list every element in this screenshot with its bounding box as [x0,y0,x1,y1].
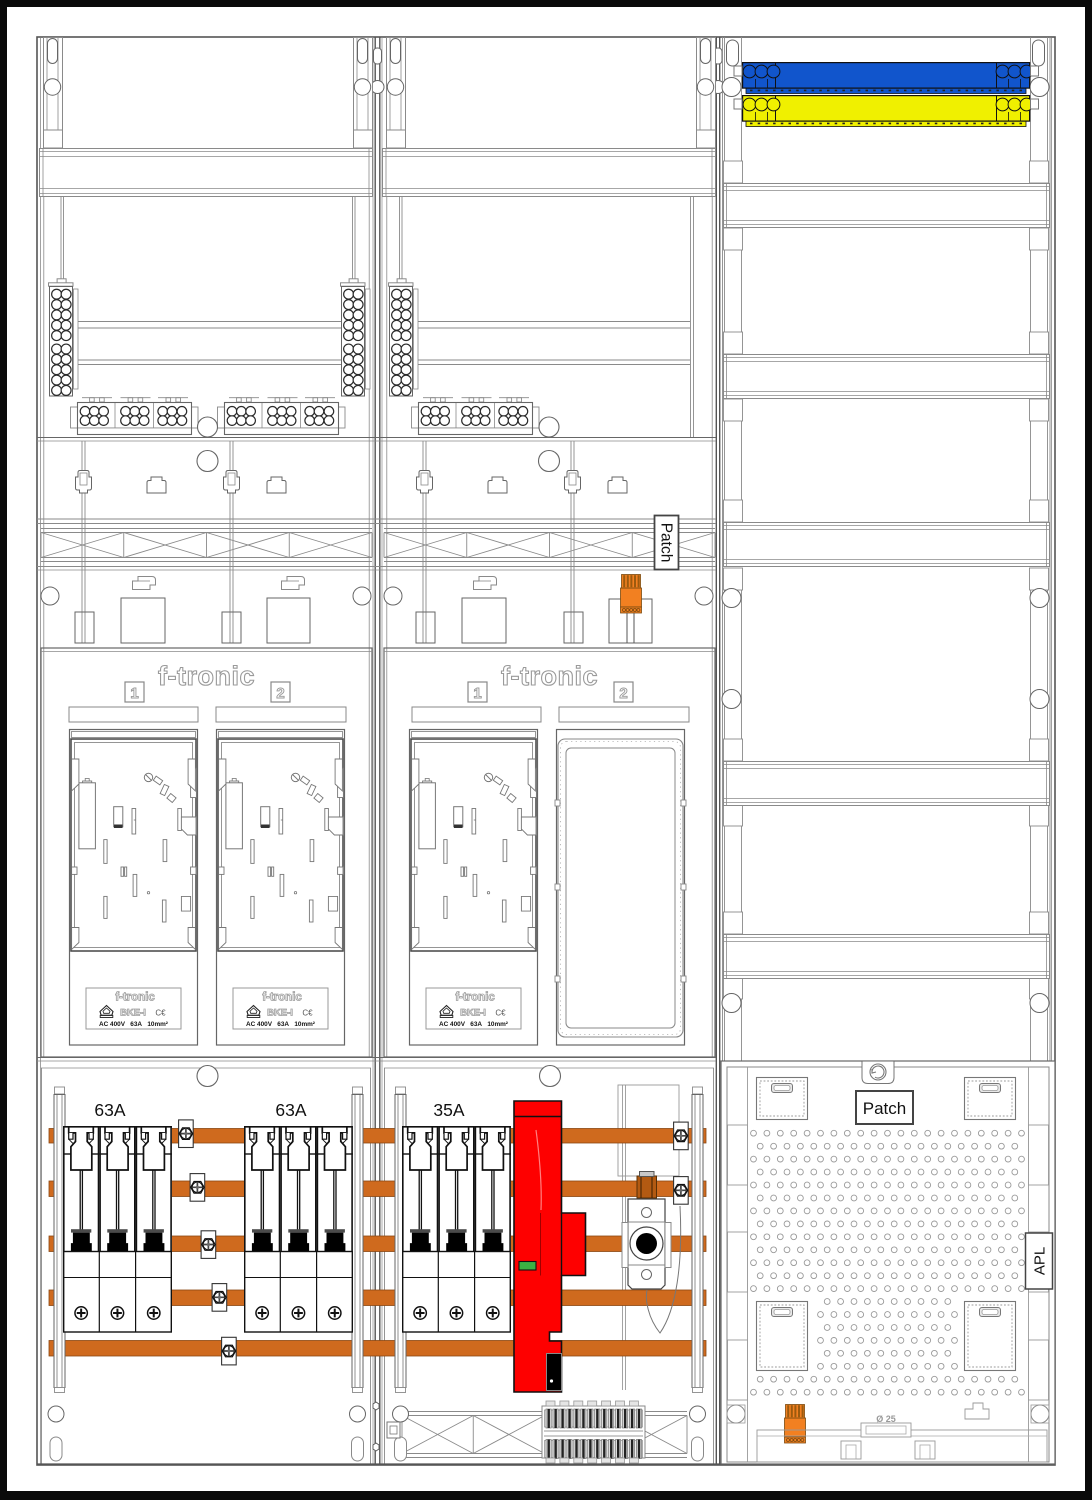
svg-text:2: 2 [276,685,284,702]
svg-text:2: 2 [619,685,627,702]
svg-text:35A: 35A [433,1100,464,1120]
svg-text:1: 1 [473,685,481,702]
svg-text:f-tronic: f-tronic [158,661,255,691]
svg-text:Patch: Patch [863,1099,906,1118]
svg-text:63A: 63A [94,1100,125,1120]
svg-text:Patch: Patch [657,523,674,563]
svg-text:f-tronic: f-tronic [501,661,598,691]
svg-text:63A: 63A [275,1100,306,1120]
svg-text:Ø 25: Ø 25 [876,1414,896,1424]
svg-text:1: 1 [130,685,138,702]
svg-text:APL: APL [1031,1247,1048,1275]
